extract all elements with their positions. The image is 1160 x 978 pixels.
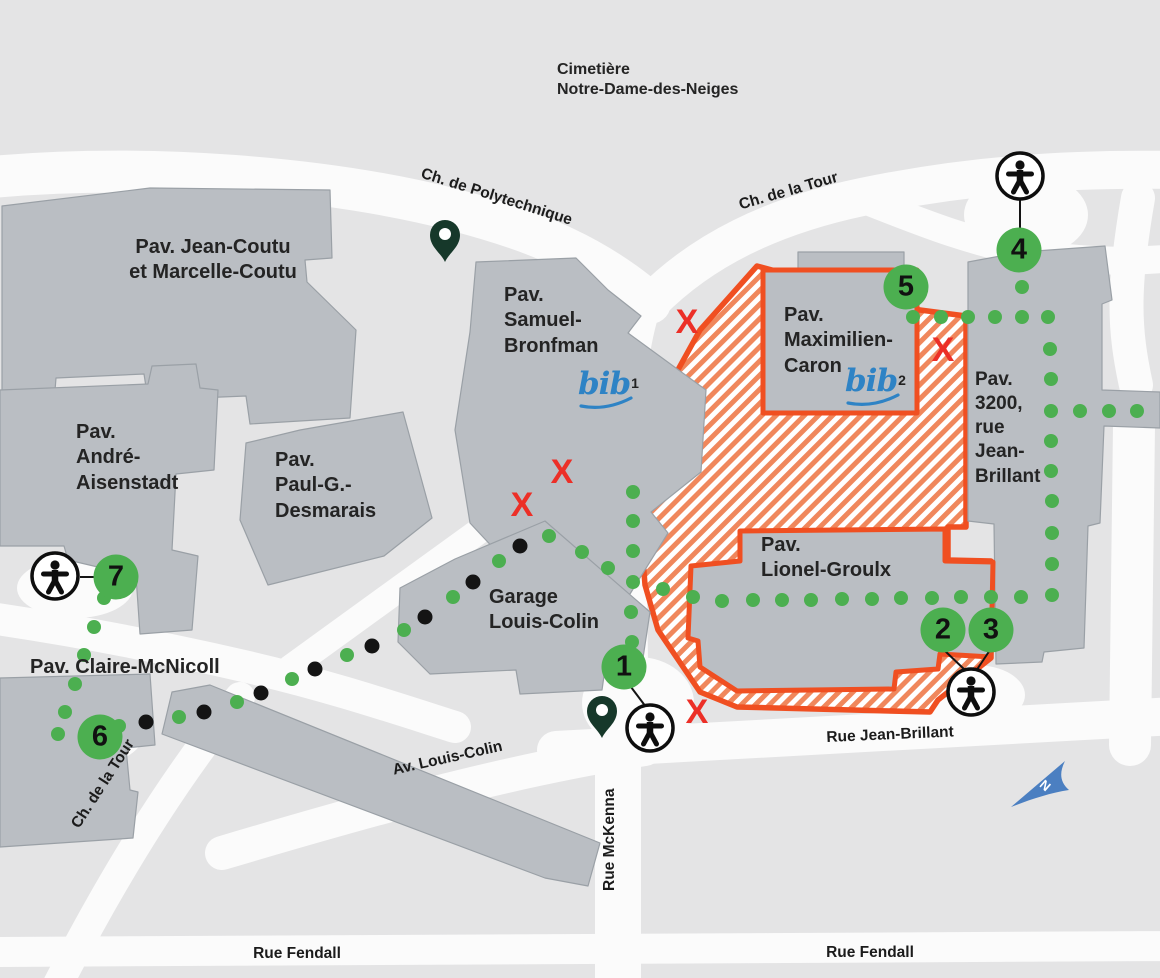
label-pav-3200: Pav. 3200, rue Jean- Brillant	[975, 368, 1040, 489]
label-samuel-bronfman: Pav. Samuel- Bronfman	[504, 283, 598, 359]
library-logo-bib-1: bib1	[578, 369, 639, 400]
cemetery-label: Cimetière Notre-Dame-des-Neiges	[557, 60, 738, 101]
label-andre-aisenstadt: Pav. André- Aisenstadt	[76, 420, 178, 496]
street-label-fendall-est: Rue Fendall	[815, 944, 925, 962]
street-label-louis-colin: Av. Louis-Colin	[391, 738, 504, 780]
closed-entrance-x-mark: X	[676, 305, 699, 339]
label-paul-g-desmarais: Pav. Paul-G.- Desmarais	[275, 448, 376, 524]
map-marker-3: 3	[969, 608, 1014, 653]
street-label-jean-brillant: Rue Jean-Brillant	[826, 723, 954, 747]
bib-superscript: 1	[631, 375, 639, 391]
map-marker-5: 5	[884, 265, 929, 310]
street-label-fendall-ouest: Rue Fendall	[247, 945, 347, 963]
bib-swoosh	[845, 392, 901, 406]
label-jean-coutu: Pav. Jean-Coutu et Marcelle-Coutu	[113, 235, 313, 286]
map-marker-4: 4	[997, 228, 1042, 273]
closed-entrance-x-mark: X	[551, 455, 574, 489]
street-label-tour-nord: Ch. de la Tour	[737, 169, 840, 214]
map-marker-2: 2	[921, 608, 966, 653]
street-label-polytechnique: Ch. de Polytechnique	[419, 165, 575, 230]
campus-map: N Cimetière Notre-Dame-des-Neiges Pav. J…	[0, 0, 1160, 978]
label-lionel-groulx: Pav. Lionel-Groulx	[761, 533, 891, 584]
map-marker-6: 6	[78, 715, 123, 760]
label-claire-mcnicoll: Pav. Claire-McNicoll	[30, 655, 220, 680]
library-logo-bib-2: bib2	[845, 366, 906, 397]
map-marker-1: 1	[602, 645, 647, 690]
closed-entrance-x-mark: X	[511, 488, 534, 522]
closed-entrance-x-mark: X	[686, 695, 709, 729]
closed-entrance-x-mark: X	[932, 333, 955, 367]
label-garage-louis-colin: Garage Louis-Colin	[489, 585, 599, 636]
bib-superscript: 2	[898, 372, 906, 388]
bib-swoosh	[578, 395, 634, 409]
street-label-mckenna: Rue McKenna	[601, 789, 619, 892]
map-marker-7: 7	[94, 555, 139, 600]
label-overlay: Cimetière Notre-Dame-des-Neiges Pav. Jea…	[0, 0, 1160, 978]
